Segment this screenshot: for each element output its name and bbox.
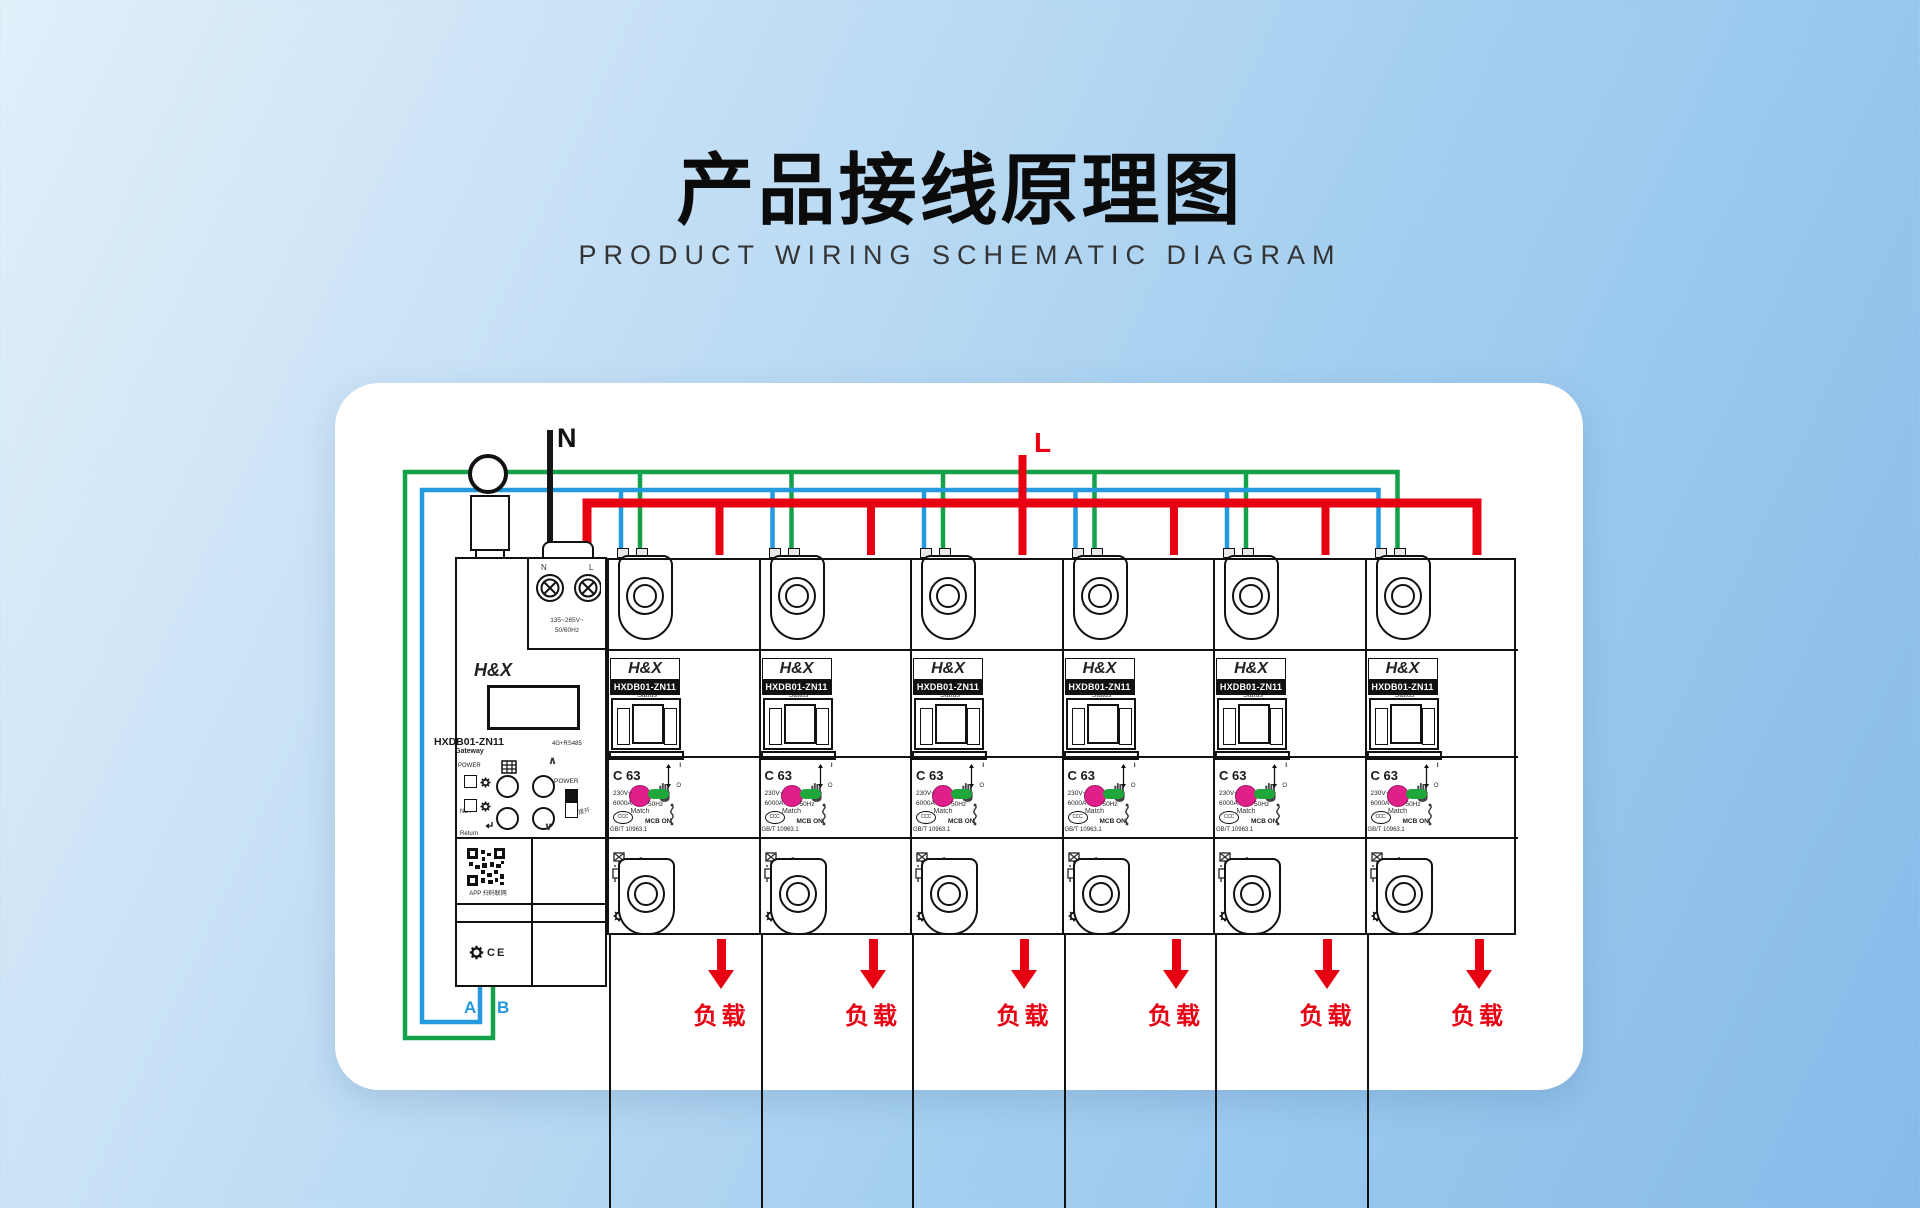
breaker-input-terminal xyxy=(1376,555,1431,640)
on-off-indicator: I O xyxy=(1271,764,1287,788)
switch-knob xyxy=(566,790,577,803)
ce-mark: CE xyxy=(487,947,506,959)
updown-arrow-icon xyxy=(1120,764,1127,788)
gateway-comm-label: 4G+RS485 xyxy=(552,741,582,747)
breaker-output-terminal xyxy=(1376,858,1433,935)
breaker-unit: Status Match MCB ON xyxy=(910,558,1062,935)
power-button-label: POWER xyxy=(554,778,579,785)
divider xyxy=(1367,649,1519,651)
din-rail-line xyxy=(457,921,605,923)
breaker-voltage: 230V~ xyxy=(613,790,632,797)
trip-symbol-icon xyxy=(1424,803,1436,827)
breaker-toggle[interactable] xyxy=(1217,698,1287,750)
divider xyxy=(1215,837,1367,839)
breaker-frequency: 50Hz xyxy=(1103,801,1118,808)
ccc-mark: CCC xyxy=(1371,811,1391,824)
breaker-standard: GB/T 10963.1 xyxy=(1216,827,1289,833)
divider xyxy=(1064,649,1216,651)
breaker-standard: GB/T 10963.1 xyxy=(913,827,986,833)
breaker-standard: GB/T 10963.1 xyxy=(1065,827,1138,833)
gateway-rating-voltage: 135~265V~ xyxy=(529,617,605,624)
circuit-breaker: H&X HXDB01-ZN11 C 63 230V~ 6000A 50Hz xyxy=(912,935,987,1208)
breaker-brand: H&X xyxy=(1368,658,1438,680)
load-arrow-head xyxy=(1163,970,1189,989)
breaker-toggle[interactable] xyxy=(1066,698,1136,750)
breaker-brand: H&X xyxy=(1216,658,1286,680)
load-label: 负载 xyxy=(671,996,772,1031)
breaker-frequency: 50Hz xyxy=(1254,801,1269,808)
breaker-capacity: 6000A xyxy=(1068,800,1087,807)
circuit-breaker: H&X HXDB01-ZN11 C 63 230V~ 6000A 50Hz xyxy=(761,935,836,1208)
breaker-unit: Status Match MCB ON xyxy=(1365,558,1517,935)
qr-caption: APP 扫码联网 xyxy=(453,888,523,897)
divider xyxy=(1215,649,1367,651)
load-arrow xyxy=(1323,939,1332,970)
page: 产品接线原理图 PRODUCT WIRING SCHEMATIC DIAGRAM… xyxy=(0,0,1920,1208)
breaker-frequency: 50Hz xyxy=(800,801,815,808)
trip-symbol-icon xyxy=(1272,803,1284,827)
page-subtitle: PRODUCT WIRING SCHEMATIC DIAGRAM xyxy=(0,240,1920,271)
breaker-unit: Status Match MCB ON xyxy=(607,558,759,935)
load-label: 负载 xyxy=(1277,996,1378,1031)
neutral-label: N xyxy=(557,423,577,454)
power-indicator xyxy=(1254,789,1275,799)
toggle-handle[interactable] xyxy=(632,704,664,744)
breaker-output-terminal xyxy=(1073,858,1130,935)
toggle-handle[interactable] xyxy=(1238,704,1270,744)
breaker-frequency: 50Hz xyxy=(648,801,663,808)
breaker-voltage: 230V~ xyxy=(1371,790,1390,797)
breaker-input-terminal xyxy=(770,555,825,640)
load-arrow-head xyxy=(1314,970,1340,989)
ccc-mark: CCC xyxy=(1219,811,1239,824)
breaker-standard: GB/T 10963.1 xyxy=(610,827,683,833)
breaker-toggle[interactable] xyxy=(1369,698,1439,750)
gear-icon xyxy=(469,945,484,960)
divider xyxy=(1367,837,1519,839)
gear-icon xyxy=(480,801,491,812)
gateway-cert-marks: CE xyxy=(469,945,506,960)
breaker-capacity: 6000A xyxy=(1371,800,1390,807)
updown-arrow-icon xyxy=(817,764,824,788)
load-arrow-head xyxy=(860,970,886,989)
divider xyxy=(912,837,1064,839)
breaker-brand: H&X xyxy=(610,658,680,680)
mcb-on-label: MCB ON xyxy=(1100,818,1140,825)
breaker-model: HXDB01-ZN11 xyxy=(610,680,680,695)
nav-button-3[interactable] xyxy=(496,807,519,830)
breaker-brand: H&X xyxy=(1065,658,1135,680)
ccc-mark: CCC xyxy=(916,811,936,824)
breaker-rating: C 63 xyxy=(1219,768,1246,783)
divider xyxy=(609,837,761,839)
divider xyxy=(1367,756,1519,758)
circuit-breaker: H&X HXDB01-ZN11 C 63 230V~ 6000A 50Hz xyxy=(609,935,684,1208)
breaker-output-terminal xyxy=(1224,858,1281,935)
breaker-model: HXDB01-ZN11 xyxy=(1065,680,1135,695)
qr-code xyxy=(467,848,505,886)
bus-b-label: B xyxy=(497,998,509,1018)
ccc-mark: CCC xyxy=(1068,811,1088,824)
divider xyxy=(531,837,533,985)
terminal-screws-icon[interactable] xyxy=(535,571,601,605)
load-label: 负载 xyxy=(974,996,1075,1031)
mcb-on-label: MCB ON xyxy=(797,818,837,825)
divider xyxy=(761,837,913,839)
breaker-capacity: 6000A xyxy=(916,800,935,807)
breaker-output-terminal xyxy=(618,858,675,935)
breaker-model: HXDB01-ZN11 xyxy=(762,680,832,695)
chevron-down-icon: ∨ xyxy=(544,820,553,833)
return-arrow-icon xyxy=(484,821,494,831)
power-indicator xyxy=(1406,789,1427,799)
breaker-frequency: 50Hz xyxy=(1406,801,1421,808)
antenna-icon xyxy=(468,454,508,494)
breaker-capacity: 6000A xyxy=(765,800,784,807)
breaker-unit: Status Match MCB ON xyxy=(1062,558,1214,935)
breaker-capacity: 6000A xyxy=(1219,800,1238,807)
load-label: 负载 xyxy=(1429,996,1530,1031)
trip-symbol-icon xyxy=(969,803,981,827)
mcb-on-label: MCB ON xyxy=(1403,818,1443,825)
antenna-stem xyxy=(470,495,510,551)
power-indicator xyxy=(1103,789,1124,799)
toggle-handle[interactable] xyxy=(1087,704,1119,744)
updown-arrow-icon xyxy=(1423,764,1430,788)
divider xyxy=(912,649,1064,651)
divider xyxy=(609,756,761,758)
chevron-up-icon: ∧ xyxy=(548,754,557,767)
power-led-label: POWER xyxy=(458,763,481,769)
din-rail-line xyxy=(457,903,605,905)
breaker-toggle[interactable] xyxy=(611,698,681,750)
breaker-unit: Status Match MCB ON xyxy=(1213,558,1365,935)
breaker-model: HXDB01-ZN11 xyxy=(1216,680,1286,695)
on-off-indicator: I O xyxy=(968,764,984,788)
load-arrow xyxy=(1172,939,1181,970)
circuit-breaker: H&X HXDB01-ZN11 C 63 230V~ 6000A 50Hz xyxy=(1215,935,1290,1208)
gateway-power-switch[interactable] xyxy=(565,789,578,818)
power-led xyxy=(464,775,477,788)
breaker-rating: C 63 xyxy=(1371,768,1398,783)
breaker-toggle[interactable] xyxy=(914,698,984,750)
breaker-output-terminal xyxy=(921,858,978,935)
divider xyxy=(761,649,913,651)
breaker-brand: H&X xyxy=(762,658,832,680)
keypad-icon xyxy=(501,760,517,774)
breaker-frequency: 50Hz xyxy=(951,801,966,808)
divider xyxy=(1064,756,1216,758)
divider xyxy=(1064,837,1216,839)
power-indicator xyxy=(951,789,972,799)
breaker-rating: C 63 xyxy=(765,768,792,783)
net-led xyxy=(464,799,477,812)
load-arrow-head xyxy=(1466,970,1492,989)
breaker-rating: C 63 xyxy=(613,768,640,783)
breaker-input-terminal xyxy=(618,555,673,640)
load-label: 负载 xyxy=(823,996,924,1031)
gateway-brand: H&X xyxy=(474,660,512,681)
gateway-rating-frequency: 50/60Hz xyxy=(529,627,605,634)
updown-arrow-icon xyxy=(1271,764,1278,788)
gateway-display xyxy=(487,685,580,730)
toggle-handle[interactable] xyxy=(935,704,967,744)
breaker-standard: GB/T 10963.1 xyxy=(1368,827,1441,833)
breaker-input-terminal xyxy=(921,555,976,640)
mcb-on-label: MCB ON xyxy=(948,818,988,825)
divider xyxy=(609,649,761,651)
load-arrow-head xyxy=(708,970,734,989)
load-arrow xyxy=(1475,939,1484,970)
on-off-indicator: I O xyxy=(665,764,681,788)
gear-icon xyxy=(480,777,491,788)
breaker-input-terminal xyxy=(1224,555,1279,640)
antenna-base xyxy=(475,549,505,559)
breaker-model: HXDB01-ZN11 xyxy=(913,680,983,695)
mcb-on-label: MCB ON xyxy=(1251,818,1291,825)
wiring-diagram-panel: N L A B N L 135~ xyxy=(335,383,1583,1090)
load-label: 负载 xyxy=(1126,996,1227,1031)
breaker-voltage: 230V~ xyxy=(765,790,784,797)
live-label: L xyxy=(1034,427,1051,459)
on-off-indicator: I O xyxy=(1423,764,1439,788)
circuit-breaker: H&X HXDB01-ZN11 C 63 230V~ 6000A 50Hz xyxy=(1367,935,1442,1208)
breaker-toggle[interactable] xyxy=(763,698,833,750)
power-indicator xyxy=(648,789,669,799)
divider xyxy=(912,756,1064,758)
breaker-capacity: 6000A xyxy=(613,800,632,807)
updown-arrow-icon xyxy=(968,764,975,788)
ccc-mark: CCC xyxy=(765,811,785,824)
on-off-indicator: I O xyxy=(1120,764,1136,788)
load-arrow xyxy=(1020,939,1029,970)
updown-arrow-icon xyxy=(665,764,672,788)
gateway-terminal-block: N L 135~265V~ 50/60Hz xyxy=(527,557,607,650)
nav-button-up[interactable] xyxy=(532,775,555,798)
trip-symbol-icon xyxy=(818,803,830,827)
circuit-breaker: H&X HXDB01-ZN11 C 63 230V~ 6000A 50Hz xyxy=(1064,935,1139,1208)
breaker-model: HXDB01-ZN11 xyxy=(1368,680,1438,695)
divider xyxy=(761,756,913,758)
mcb-on-label: MCB ON xyxy=(645,818,685,825)
breaker-brand: H&X xyxy=(913,658,983,680)
breaker-voltage: 230V~ xyxy=(1219,790,1238,797)
trip-symbol-icon xyxy=(1121,803,1133,827)
breaker-rating: C 63 xyxy=(916,768,943,783)
trip-symbol-icon xyxy=(666,803,678,827)
toggle-handle[interactable] xyxy=(1390,704,1422,744)
load-arrow-head xyxy=(1011,970,1037,989)
breaker-input-terminal xyxy=(1073,555,1128,640)
bus-a-label: A xyxy=(464,998,476,1018)
on-off-indicator: I O xyxy=(817,764,833,788)
load-arrow xyxy=(717,939,726,970)
nav-button-1[interactable] xyxy=(496,775,519,798)
switch-label: 拨开 xyxy=(577,805,591,816)
gateway-model: HXDB01-ZN11 xyxy=(434,736,530,748)
toggle-handle[interactable] xyxy=(784,704,816,744)
breaker-voltage: 230V~ xyxy=(916,790,935,797)
breaker-rating: C 63 xyxy=(1068,768,1095,783)
page-title: 产品接线原理图 xyxy=(0,128,1920,240)
breaker-output-terminal xyxy=(770,858,827,935)
breaker-voltage: 230V~ xyxy=(1068,790,1087,797)
breaker-standard: GB/T 10963.1 xyxy=(762,827,835,833)
gateway-device: N L 135~265V~ 50/60Hz H&X HXDB01-ZN11 Ga… xyxy=(455,557,607,987)
breaker-unit: Status Match MCB ON xyxy=(759,558,911,935)
load-arrow xyxy=(869,939,878,970)
divider xyxy=(1215,756,1367,758)
ccc-mark: CCC xyxy=(613,811,633,824)
gateway-type-label: Gateway xyxy=(455,748,484,755)
power-indicator xyxy=(800,789,821,799)
